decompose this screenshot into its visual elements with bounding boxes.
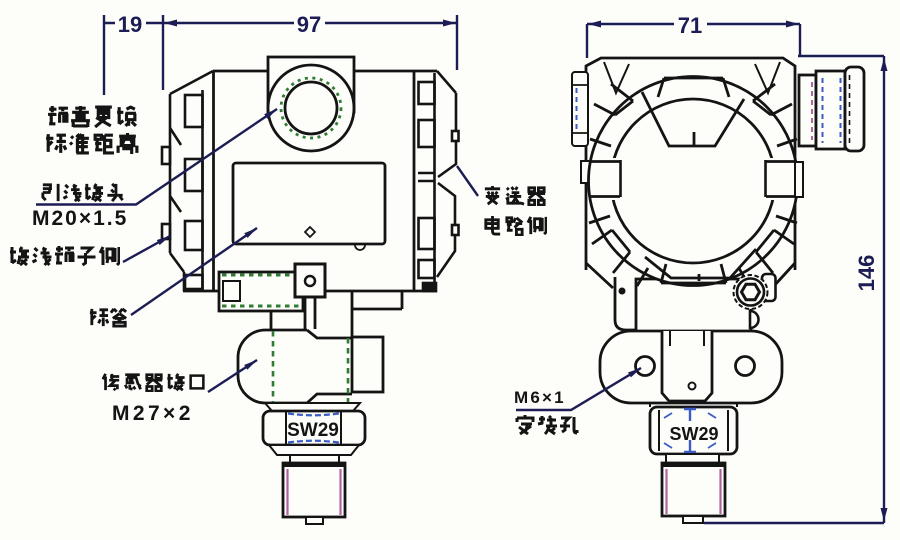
svg-text:SW29: SW29 — [287, 420, 339, 441]
svg-text:M20×1.5: M20×1.5 — [32, 207, 128, 230]
svg-text:SW29: SW29 — [669, 424, 718, 444]
svg-text:19: 19 — [118, 12, 142, 37]
svg-text:146: 146 — [854, 255, 879, 292]
svg-text:71: 71 — [678, 13, 702, 38]
svg-text:97: 97 — [297, 12, 321, 37]
svg-text:M6×1: M6×1 — [514, 388, 566, 407]
svg-text:M27×2: M27×2 — [112, 402, 194, 425]
